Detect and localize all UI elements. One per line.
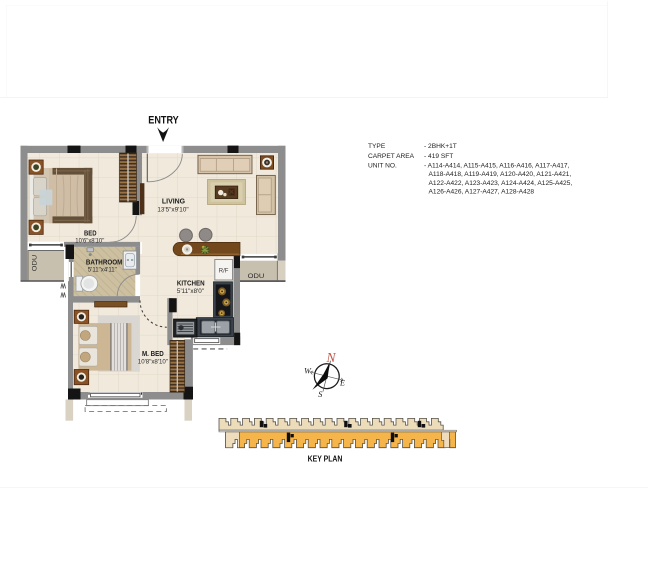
svg-text:KEY PLAN: KEY PLAN (308, 455, 343, 464)
svg-text:ODU: ODU (32, 255, 39, 272)
svg-text:R/F: R/F (219, 269, 229, 275)
svg-text:5'11"x8'0": 5'11"x8'0" (177, 288, 204, 295)
svg-text:A118-A418, A119-A419, A120-A42: A118-A418, A119-A419, A120-A420, A121-A4… (429, 171, 572, 178)
svg-text:CARPET AREA: CARPET AREA (368, 153, 415, 160)
svg-text:N: N (325, 350, 336, 365)
svg-text:A122-A422, A123-A423, A124-A42: A122-A422, A123-A423, A124-A424, A125-A4… (429, 180, 573, 187)
svg-text:S: S (318, 389, 323, 399)
svg-text:ENTRY: ENTRY (148, 114, 179, 126)
svg-text:10'6"x8'10": 10'6"x8'10" (75, 237, 104, 244)
svg-text:LIVING: LIVING (162, 197, 185, 206)
svg-text:M. BED: M. BED (142, 349, 164, 358)
svg-text:KITCHEN: KITCHEN (177, 279, 205, 288)
svg-text:5'11"x4'11": 5'11"x4'11" (88, 267, 117, 274)
svg-text:- 419 SFT: - 419 SFT (424, 153, 453, 160)
svg-text:13'5"x9'10": 13'5"x9'10" (157, 206, 188, 213)
svg-text:BED: BED (84, 228, 97, 237)
svg-text:- 2BHK+1T: - 2BHK+1T (424, 143, 457, 150)
svg-text:UNIT NO.: UNIT NO. (368, 163, 397, 170)
svg-text:10'8"x8'10": 10'8"x8'10" (138, 359, 168, 366)
svg-text:- A114-A414, A115-A415, A116-A: - A114-A414, A115-A415, A116-A416, A117-… (424, 163, 570, 170)
svg-text:A126-A426, A127-A427, A128-A42: A126-A426, A127-A427, A128-A428 (429, 189, 535, 196)
svg-text:E: E (339, 378, 345, 387)
svg-text:BATHROOM: BATHROOM (86, 259, 123, 266)
svg-text:TYPE: TYPE (368, 143, 386, 150)
svg-text:ODU: ODU (248, 273, 265, 280)
